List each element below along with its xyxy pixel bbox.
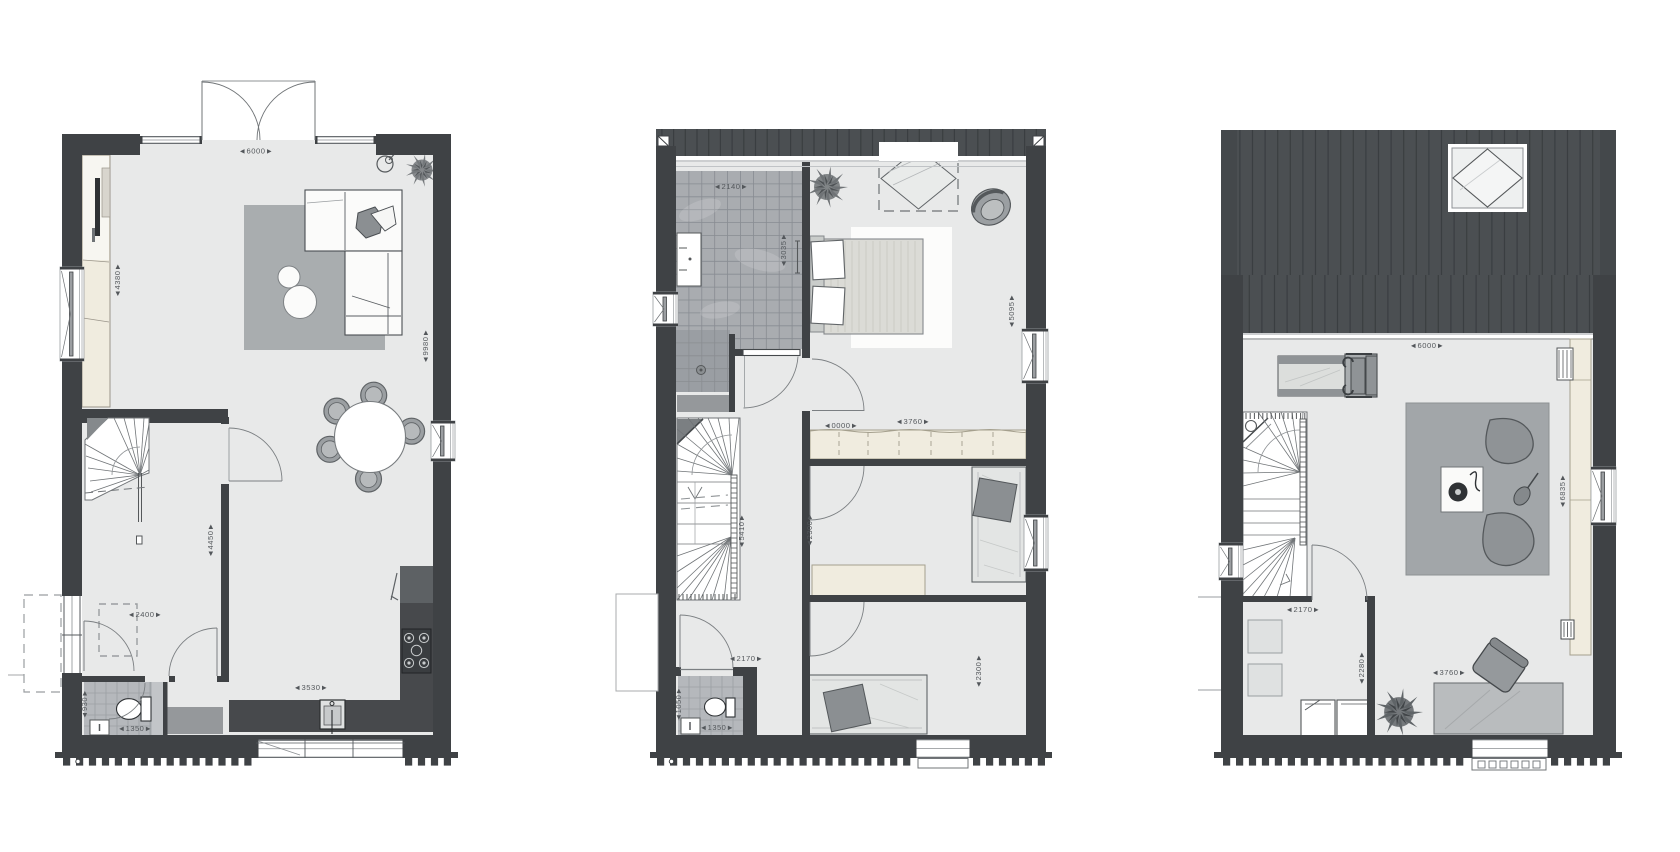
svg-text:◄5410►: ◄5410► [737, 514, 746, 549]
svg-text:◄3760►: ◄3760► [896, 417, 931, 426]
svg-text:◄2400►: ◄2400► [128, 610, 163, 619]
svg-text:◄4450►: ◄4450► [206, 523, 215, 558]
svg-text:◄2300►: ◄2300► [805, 513, 814, 548]
svg-text:◄5095►: ◄5095► [1007, 294, 1016, 329]
svg-text:◄2170►: ◄2170► [729, 654, 764, 663]
svg-text:◄1350►: ◄1350► [118, 724, 153, 733]
svg-text:◄4380►: ◄4380► [113, 263, 122, 298]
svg-text:◄6000►: ◄6000► [239, 147, 274, 156]
svg-text:◄2170►: ◄2170► [1286, 605, 1321, 614]
svg-text:◄2280►: ◄2280► [1357, 651, 1366, 686]
svg-text:◄3035►: ◄3035► [779, 233, 788, 268]
svg-text:◄930►: ◄930► [80, 689, 89, 719]
svg-text:◄3760►: ◄3760► [1432, 668, 1467, 677]
svg-text:◄1050►: ◄1050► [674, 687, 683, 722]
svg-text:◄2300►: ◄2300► [974, 654, 983, 689]
svg-text:◄2140►: ◄2140► [714, 182, 749, 191]
svg-text:◄1350►: ◄1350► [700, 723, 735, 732]
svg-text:◄9980►: ◄9980► [421, 329, 430, 364]
svg-text:◄0000►: ◄0000► [824, 421, 859, 430]
svg-text:◄6835►: ◄6835► [1558, 474, 1567, 509]
svg-text:◄6000►: ◄6000► [1410, 341, 1445, 350]
svg-text:◄3530►: ◄3530► [294, 683, 329, 692]
